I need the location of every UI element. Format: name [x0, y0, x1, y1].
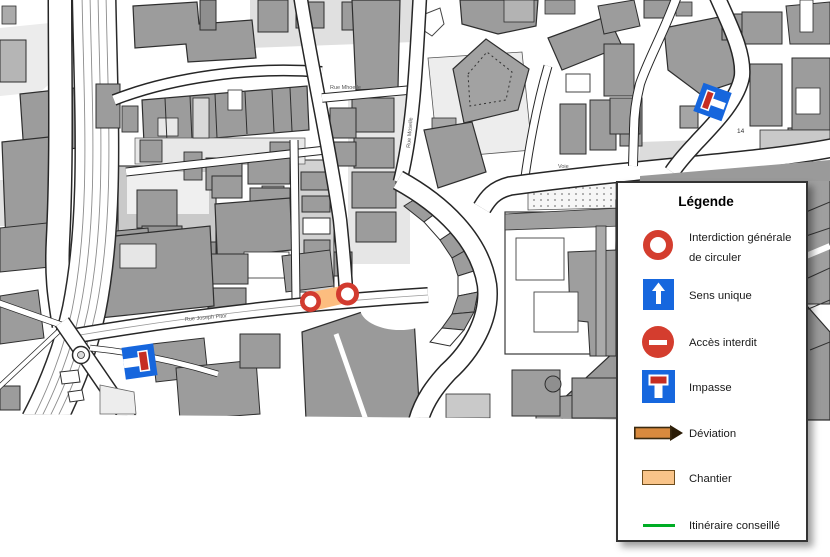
svg-text:Rue Mhoelle: Rue Mhoelle [330, 85, 361, 91]
svg-text:14: 14 [737, 128, 745, 135]
svg-text:Voie: Voie [558, 164, 569, 170]
